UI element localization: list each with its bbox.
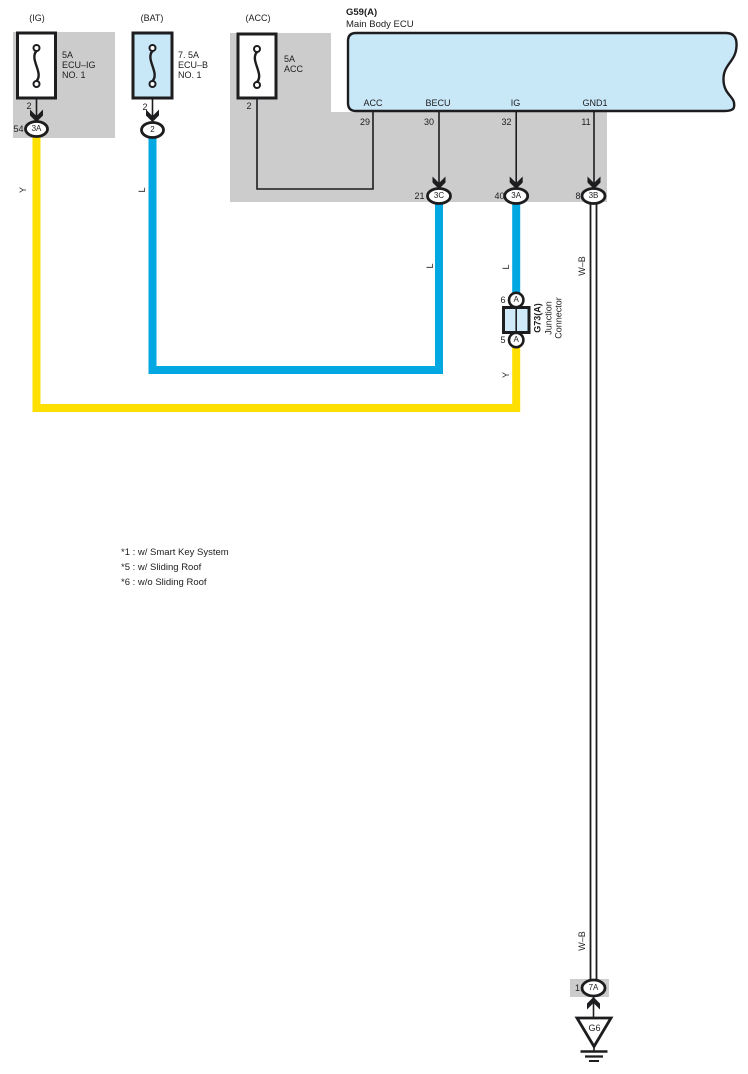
ecu-pin-acc-number: 29 [360,117,370,127]
diagram-graphics [0,0,748,1074]
ig-fuse-circuit: ECU–IG [62,60,96,70]
terminal-21: 21 [414,191,424,201]
junction-top-pin: 6 [500,295,505,305]
note-2: *5 : w/ Sliding Roof [121,560,229,575]
wb-ground-wire [591,203,597,980]
ig-terminal-number: 54 [13,124,23,134]
wire-label-wb-bottom: W–B [577,931,587,951]
ecu-pin-becu-label: BECU [425,98,450,108]
acc-fuse-rating: 5A [284,54,303,64]
junction-code: G73(A) [532,297,543,339]
ecu-pin-gnd1-label: GND1 [582,98,607,108]
ecu-code: G59(A) [346,7,377,19]
connector-3b-label: 3B [589,192,599,200]
ecu-pin-acc-label: ACC [363,98,382,108]
ground-connector-label: 7A [589,984,599,992]
acc-fuse-circuit: ACC [284,64,303,74]
bat-fuse-number: NO. 1 [178,70,208,80]
wire-label-y-junction: Y [501,372,511,378]
acc-fuse-pin: 2 [246,101,251,111]
bat-fuse-title: (BAT) [141,13,164,23]
junction-word-2: Connector [553,297,564,339]
ig-connector-label: 3A [32,125,42,133]
terminal-8: 8 [575,191,580,201]
acc-fuse-title: (ACC) [246,13,271,23]
bat-fuse-rating: 7. 5A [178,50,208,60]
ig-fuse-title: (IG) [29,13,45,23]
note-3: *6 : w/o Sliding Roof [121,575,229,590]
ecu-block [348,33,737,111]
ecu-pin-becu-number: 30 [424,117,434,127]
connector-3c-label: 3C [434,192,444,200]
ig-fuse-label: 5A ECU–IG NO. 1 [62,50,96,80]
wire-label-wb-top: W–B [577,256,587,276]
ecu-pin-ig-label: IG [511,98,521,108]
wire-label-y-left: Y [18,187,28,193]
wire-label-l-bat: L [137,187,147,192]
ecu-pin-ig-number: 32 [501,117,511,127]
ecu-name: Main Body ECU [346,19,414,31]
acc-fuse-label: 5A ACC [284,54,303,74]
diagram-notes: *1 : w/ Smart Key System *5 : w/ Sliding… [121,545,229,591]
wiring-diagram: (IG) (BAT) (ACC) G59(A) Main Body ECU 5A… [0,0,748,1074]
ground-point-code: G6 [588,1023,600,1033]
terminal-40: 40 [494,191,504,201]
bat-fuse-circuit: ECU–B [178,60,208,70]
ground-pin-number: 1 [575,983,580,993]
ecu-pin-gnd1-number: 11 [581,117,590,127]
wire-label-l-becu: L [425,263,435,268]
note-1: *1 : w/ Smart Key System [121,545,229,560]
junction-word-1: Junction [543,297,554,339]
ig-fuse-rating: 5A [62,50,96,60]
wire-label-l-ig: L [501,264,511,269]
junction-connector-name: G73(A) Junction Connector [532,297,564,339]
bat-fuse-label: 7. 5A ECU–B NO. 1 [178,50,208,80]
junction-top-connector-label: A [514,296,519,304]
ig-fuse-pin: 2 [26,101,31,111]
bat-connector-label: 2 [150,126,154,134]
junction-bottom-pin: 5 [500,335,505,345]
ig-fuse-number: NO. 1 [62,70,96,80]
connector-3a-label: 3A [511,192,521,200]
bat-fuse-pin: 2 [142,102,147,112]
junction-bottom-connector-label: A [514,336,519,344]
